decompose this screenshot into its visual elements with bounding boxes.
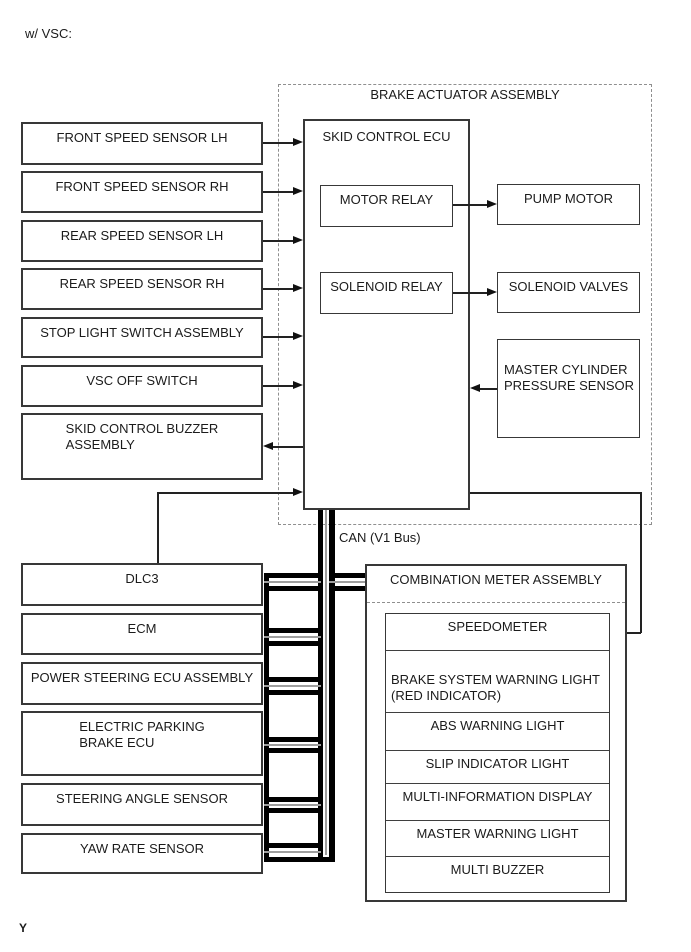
meter-row-multi-information: MULTI-INFORMATION DISPLAY — [386, 783, 609, 820]
brake-actuator-assembly-title: BRAKE ACTUATOR ASSEMBLY — [278, 87, 652, 103]
can-stub-epb-center — [264, 744, 321, 746]
power-steering-ecu-label: POWER STEERING ECU ASSEMBLY — [31, 670, 253, 685]
box-power-steering-ecu: POWER STEERING ECU ASSEMBLY — [21, 662, 263, 705]
dlc3-to-ecu-vline — [157, 493, 159, 563]
can-bus-label: CAN (V1 Bus) — [339, 530, 421, 546]
pressure-sensor-to-ecu-arrow — [470, 384, 480, 392]
rear-speed-lh-arrow — [293, 236, 303, 244]
meter-row-slip-indicator: SLIP INDICATOR LIGHT — [386, 750, 609, 783]
meter-items-stack: SPEEDOMETER BRAKE SYSTEM WARNING LIGHT (… — [385, 613, 610, 893]
meter-row-brake-warning: BRAKE SYSTEM WARNING LIGHT (RED INDICATO… — [386, 650, 609, 713]
dlc3-label: DLC3 — [125, 571, 158, 586]
pump-motor-box: PUMP MOTOR — [497, 184, 640, 225]
can-stub-epb-bottom — [264, 748, 321, 753]
box-dlc3: DLC3 — [21, 563, 263, 606]
stop-light-switch-arrow — [293, 332, 303, 340]
steering-angle-sensor-label: STEERING ANGLE SENSOR — [56, 791, 228, 806]
can-stub-meter-top — [329, 573, 365, 578]
electric-parking-brake-ecu-label: ELECTRIC PARKING BRAKE ECU — [79, 719, 204, 774]
can-stub-ps-top — [264, 677, 321, 682]
front-speed-rh-arrow — [293, 187, 303, 195]
can-stub-meter-bottom — [329, 586, 365, 591]
combination-meter-title: COMBINATION METER ASSEMBLY — [390, 572, 602, 587]
box-rear-speed-sensor-lh: REAR SPEED SENSOR LH — [21, 220, 263, 262]
box-front-speed-sensor-rh: FRONT SPEED SENSOR RH — [21, 171, 263, 213]
buzzer-arrow — [263, 442, 273, 450]
vsc-off-switch-line — [263, 385, 294, 387]
can-stub-ecm-bottom — [264, 641, 321, 646]
pump-motor-label: PUMP MOTOR — [524, 191, 613, 206]
skid-control-buzzer-label: SKID CONTROL BUZZER ASSEMBLY — [66, 421, 219, 478]
box-ecm: ECM — [21, 613, 263, 655]
front-speed-lh-line — [263, 142, 294, 144]
meter-row-speedometer: SPEEDOMETER — [386, 614, 609, 650]
pressure-sensor-to-ecu-line — [480, 388, 497, 390]
page-marker: Y — [19, 920, 27, 936]
rear-speed-sensor-rh-label: REAR SPEED SENSOR RH — [60, 276, 225, 291]
box-electric-parking-brake-ecu: ELECTRIC PARKING BRAKE ECU — [21, 711, 263, 776]
box-stop-light-switch: STOP LIGHT SWITCH ASSEMBLY — [21, 317, 263, 358]
box-steering-angle-sensor: STEERING ANGLE SENSOR — [21, 783, 263, 826]
multi-information-label: MULTI-INFORMATION DISPLAY — [403, 789, 593, 804]
solenoid-relay-label: SOLENOID RELAY — [330, 279, 442, 294]
can-stub-yaw-top — [264, 843, 321, 848]
speedometer-label: SPEEDOMETER — [448, 619, 548, 634]
meter-row-master-warning: MASTER WARNING LIGHT — [386, 820, 609, 857]
rear-speed-rh-arrow — [293, 284, 303, 292]
abs-warning-label: ABS WARNING LIGHT — [431, 718, 565, 733]
solenoid-relay-to-valves-arrow — [487, 288, 497, 296]
meter-row-multi-buzzer: MULTI BUZZER — [386, 856, 609, 892]
motor-relay-label: MOTOR RELAY — [340, 192, 433, 207]
solenoid-relay-box: SOLENOID RELAY — [320, 272, 453, 314]
rear-speed-rh-line — [263, 288, 294, 290]
motor-relay-to-pump-line — [453, 204, 487, 206]
can-bus-bottom-cap — [264, 857, 335, 862]
ecu-to-meter-hline-top — [470, 492, 642, 494]
can-stub-dlc3-top — [264, 573, 321, 578]
rear-speed-sensor-lh-label: REAR SPEED SENSOR LH — [61, 228, 224, 243]
front-speed-rh-line — [263, 191, 294, 193]
can-stub-ps-bottom — [264, 690, 321, 695]
can-stub-epb-top — [264, 737, 321, 742]
buzzer-line — [273, 446, 303, 448]
can-stub-sas-top — [264, 797, 321, 802]
box-vsc-off-switch: VSC OFF SWITCH — [21, 365, 263, 407]
skid-control-ecu-box: SKID CONTROL ECU — [303, 119, 470, 510]
ecu-to-meter-vline — [640, 492, 642, 633]
dlc3-to-ecu-hline — [157, 492, 294, 494]
box-rear-speed-sensor-rh: REAR SPEED SENSOR RH — [21, 268, 263, 310]
can-stub-dlc3-center — [264, 581, 321, 583]
vsc-system-wiring-diagram: w/ VSC: Y BRAKE ACTUATOR ASSEMBLY SKID C… — [0, 0, 691, 952]
rear-speed-lh-line — [263, 240, 294, 242]
box-skid-control-buzzer: SKID CONTROL BUZZER ASSEMBLY — [21, 413, 263, 480]
motor-relay-to-pump-arrow — [487, 200, 497, 208]
variant-label: w/ VSC: — [25, 26, 72, 42]
can-stub-ps-center — [264, 685, 321, 687]
ecm-label: ECM — [128, 621, 157, 636]
solenoid-valves-box: SOLENOID VALVES — [497, 272, 640, 313]
can-trunk-pair-center — [325, 510, 327, 855]
motor-relay-box: MOTOR RELAY — [320, 185, 453, 227]
slip-indicator-label: SLIP INDICATOR LIGHT — [426, 756, 570, 771]
multi-buzzer-label: MULTI BUZZER — [451, 862, 545, 877]
can-stub-dlc3-bottom — [264, 586, 321, 591]
can-stub-sas-center — [264, 804, 321, 806]
dlc3-to-ecu-arrow — [293, 488, 303, 496]
master-warning-label: MASTER WARNING LIGHT — [416, 826, 578, 841]
can-trunk-line-outer — [329, 510, 335, 862]
meter-row-abs-warning: ABS WARNING LIGHT — [386, 712, 609, 750]
front-speed-lh-arrow — [293, 138, 303, 146]
can-stub-yaw-center — [264, 851, 321, 853]
solenoid-relay-to-valves-line — [453, 292, 487, 294]
combination-meter-divider — [367, 602, 625, 603]
stop-light-switch-label: STOP LIGHT SWITCH ASSEMBLY — [40, 325, 243, 340]
front-speed-sensor-lh-label: FRONT SPEED SENSOR LH — [57, 130, 228, 145]
can-ladder-left-rail — [264, 573, 269, 862]
brake-warning-label: BRAKE SYSTEM WARNING LIGHT (RED INDICATO… — [391, 672, 600, 703]
front-speed-sensor-rh-label: FRONT SPEED SENSOR RH — [55, 179, 228, 194]
can-stub-ecm-top — [264, 628, 321, 633]
can-stub-sas-bottom — [264, 808, 321, 813]
yaw-rate-sensor-label: YAW RATE SENSOR — [80, 841, 204, 856]
box-front-speed-sensor-lh: FRONT SPEED SENSOR LH — [21, 122, 263, 165]
stop-light-switch-line — [263, 336, 294, 338]
box-yaw-rate-sensor: YAW RATE SENSOR — [21, 833, 263, 874]
vsc-off-switch-label: VSC OFF SWITCH — [86, 373, 197, 388]
can-stub-meter-center — [329, 581, 365, 583]
solenoid-valves-label: SOLENOID VALVES — [509, 279, 628, 294]
master-cylinder-pressure-sensor-box: MASTER CYLINDER PRESSURE SENSOR — [497, 339, 640, 438]
vsc-off-switch-arrow — [293, 381, 303, 389]
can-stub-ecm-center — [264, 636, 321, 638]
skid-control-ecu-label: SKID CONTROL ECU — [322, 129, 450, 144]
master-cylinder-pressure-sensor-label: MASTER CYLINDER PRESSURE SENSOR — [504, 362, 634, 393]
